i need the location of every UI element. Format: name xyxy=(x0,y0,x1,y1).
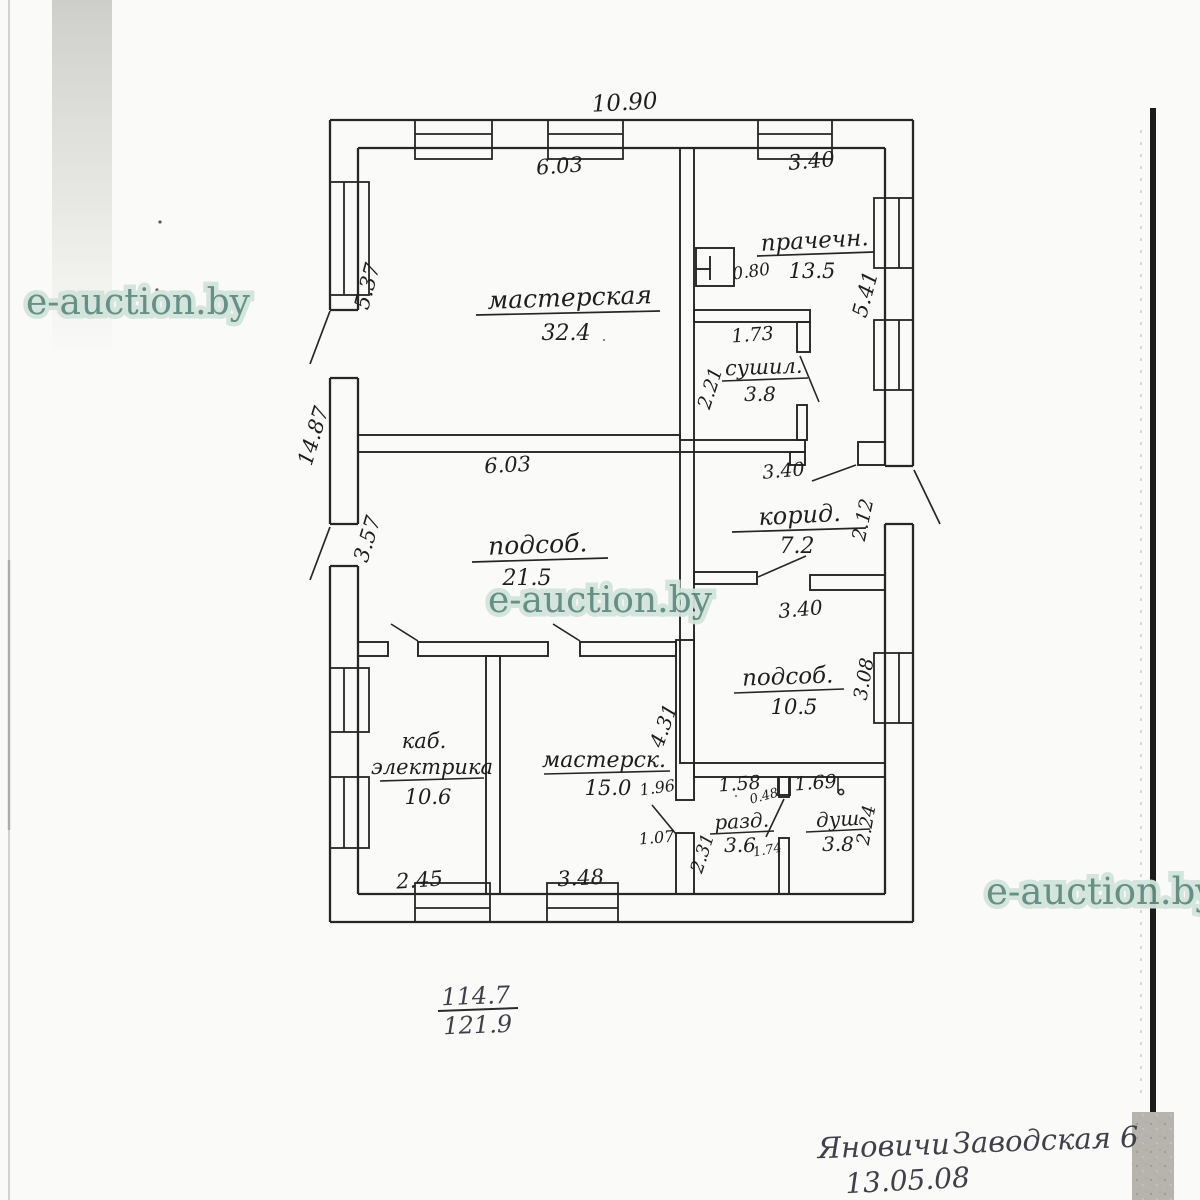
room-label-dryer: сушил. 3.8 xyxy=(722,354,808,406)
note-date: 13.05.08 xyxy=(844,1161,970,1200)
note-street: Заводская 6 xyxy=(952,1120,1139,1160)
dim-door-196: 1.96 xyxy=(638,776,676,800)
dim-workshop2-width: 3.48 xyxy=(557,865,605,891)
corridor-exit-swing xyxy=(914,470,940,524)
dim-corridor-door: 2.12 xyxy=(848,497,879,544)
wall-utility1-bottom-b xyxy=(418,642,548,656)
dim-corridor-width: 3.40 xyxy=(761,458,805,484)
watermark-left: e-auction.by xyxy=(26,282,251,323)
handwritten-note: Яновичи Заводская 6 13.05.08 xyxy=(815,1120,1139,1200)
dim-left-total: 14.87 xyxy=(293,403,334,468)
dim-closet-width: 0.80 xyxy=(731,259,771,284)
room-area: 3.8 xyxy=(822,832,854,856)
dim-dryer-height: 2.21 xyxy=(693,365,727,413)
dim-shower-width: 1.69 xyxy=(794,771,838,796)
dim-laundry-width: 3.40 xyxy=(787,147,836,175)
wall-workshop2-right-a xyxy=(676,640,694,800)
speck xyxy=(603,339,605,341)
room-area: 7.2 xyxy=(780,534,815,559)
right-page-edge-line xyxy=(1150,108,1156,1200)
room-name: душ xyxy=(815,806,859,832)
dim-left-upper: 5.37 xyxy=(350,260,385,312)
scanned-floor-plan-sheet: мастерская 32.4 прачечн. 13.5 сушил. 3.8… xyxy=(0,0,1200,1200)
watermark-bottom-right: e-auction.by xyxy=(986,870,1200,913)
room-name-2: электрика xyxy=(371,755,493,779)
room-name: мастерск. xyxy=(542,748,666,773)
window-icon xyxy=(330,777,369,848)
room-area: 32.4 xyxy=(542,321,591,346)
dim-utility1-width: 6.03 xyxy=(484,452,532,478)
room-name: подсоб. xyxy=(488,528,588,560)
dim-workshop-width: 6.03 xyxy=(535,152,583,179)
corridor-utility2-swing xyxy=(758,556,806,577)
total-area-upper: 114.7 xyxy=(441,981,511,1011)
window-icon xyxy=(330,668,369,732)
total-area-lower: 121.9 xyxy=(443,1010,513,1040)
speck xyxy=(158,220,161,223)
dim-dryer-width: 1.73 xyxy=(731,323,775,348)
room-area: 13.5 xyxy=(789,259,836,283)
dim-door-107: 1.07 xyxy=(638,826,676,848)
window-icon xyxy=(874,198,913,268)
dim-utility2-width: 3.40 xyxy=(777,595,824,623)
right-edge-texture xyxy=(1132,1112,1174,1200)
wall-corridor-utility2b xyxy=(810,575,885,590)
laundry-corridor-swing xyxy=(812,465,856,481)
total-area-fraction: 114.7 121.9 xyxy=(438,981,518,1040)
exterior-door-swings xyxy=(310,311,940,580)
room-label-laundry: прачечн. 13.5 xyxy=(757,225,874,283)
dim-left-lower: 3.57 xyxy=(349,512,386,564)
utility1-workshop2-swing xyxy=(553,624,580,641)
window-icon xyxy=(874,320,913,390)
room-name: подсоб. xyxy=(742,662,834,691)
room-name: каб. xyxy=(402,729,447,753)
porch-swing-lower xyxy=(310,527,330,580)
porch-swing-upper xyxy=(310,311,330,364)
dim-passage-height: 2.31 xyxy=(686,831,719,877)
room-name: сушил. xyxy=(725,354,803,381)
wall-stub xyxy=(797,322,810,352)
floor-plan-svg: мастерская 32.4 прачечн. 13.5 сушил. 3.8… xyxy=(0,0,1200,1200)
dryer-door-swing xyxy=(800,356,819,402)
room-name: корид. xyxy=(758,499,842,531)
note-settlement: Яновичи xyxy=(815,1127,950,1166)
wall-notch xyxy=(858,442,885,465)
room-label-corridor: корид. 7.2 xyxy=(732,499,866,559)
wall-locker-shower-a xyxy=(779,777,789,797)
room-area: 3.8 xyxy=(744,382,776,406)
dim-elec-width: 2.45 xyxy=(394,866,443,893)
shower-door-knob xyxy=(838,789,843,794)
room-area: 10.6 xyxy=(405,785,452,809)
wall-utility1-bottom-c xyxy=(580,642,676,656)
utility1-elec-swing xyxy=(391,624,418,641)
wall-stub xyxy=(797,405,807,440)
room-name: мастерская xyxy=(487,280,652,315)
wall-dryer-corridor xyxy=(694,440,805,452)
window-icon xyxy=(415,120,492,159)
watermark-center: e-auction.by xyxy=(488,580,713,621)
room-area: 10.5 xyxy=(771,695,818,719)
watermarks: e-auction.by e-auction.by e-auction.by xyxy=(26,282,1200,913)
wall-workshop-laundry xyxy=(680,148,694,440)
room-label-utility2: подсоб. 10.5 xyxy=(734,662,844,719)
wall-workshop-utility xyxy=(358,435,680,452)
closet-box xyxy=(696,248,734,286)
wall-laundry-dryer xyxy=(694,310,810,322)
room-name: разд. xyxy=(714,808,770,835)
wall-utility1-bottom-a xyxy=(358,642,388,656)
window-icon xyxy=(874,653,913,723)
dim-top-overall: 10.90 xyxy=(591,88,658,117)
room-area: 15.0 xyxy=(585,776,632,800)
dim-right-upper: 5.41 xyxy=(848,268,883,319)
room-label-workshop1: мастерская 32.4 xyxy=(476,280,660,346)
room-label-electrician: каб. электрика 10.6 xyxy=(371,729,493,809)
